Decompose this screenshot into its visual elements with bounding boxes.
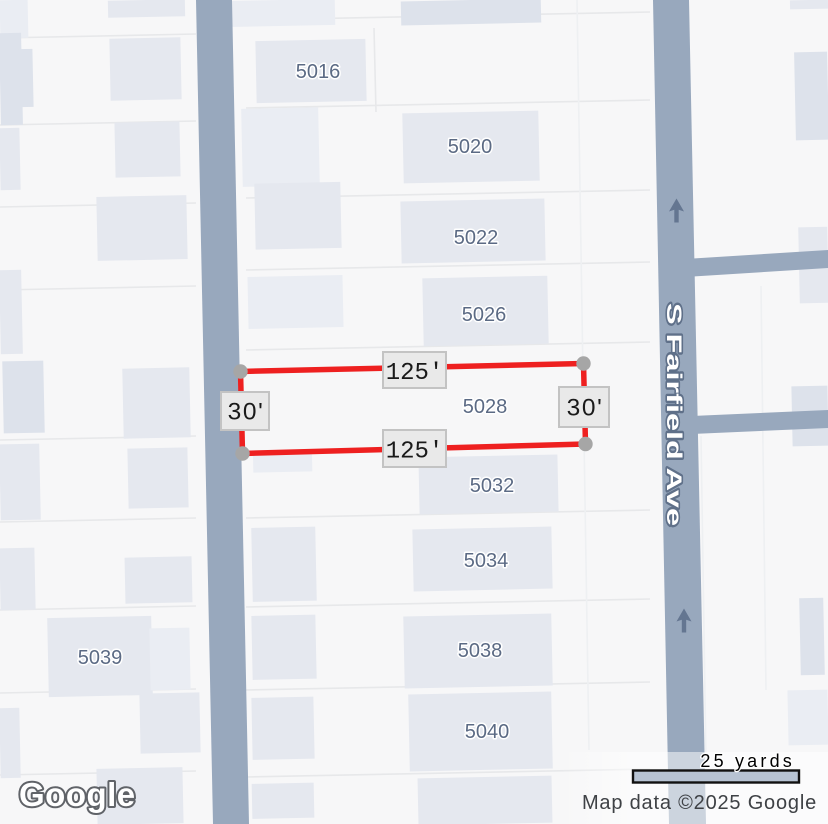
svg-text:S Fairfield Ave: S Fairfield Ave [662,303,685,526]
svg-text:Google: Google [19,776,136,813]
svg-text:5034: 5034 [464,550,509,572]
svg-text:25 yards: 25 yards [700,751,795,771]
svg-text:30': 30' [567,395,604,422]
svg-text:Map data ©2025 Google: Map data ©2025 Google [582,792,817,814]
svg-text:5038: 5038 [458,640,503,662]
svg-text:5020: 5020 [448,136,493,158]
svg-text:5016: 5016 [296,61,341,83]
svg-text:5039: 5039 [78,647,123,669]
svg-text:125': 125' [386,438,444,465]
svg-text:5032: 5032 [470,475,515,497]
svg-text:5040: 5040 [465,721,510,743]
svg-text:5022: 5022 [454,227,499,249]
svg-text:5026: 5026 [462,304,507,326]
svg-text:5028: 5028 [463,396,508,418]
svg-text:125': 125' [386,360,444,387]
svg-text:30': 30' [228,399,265,426]
